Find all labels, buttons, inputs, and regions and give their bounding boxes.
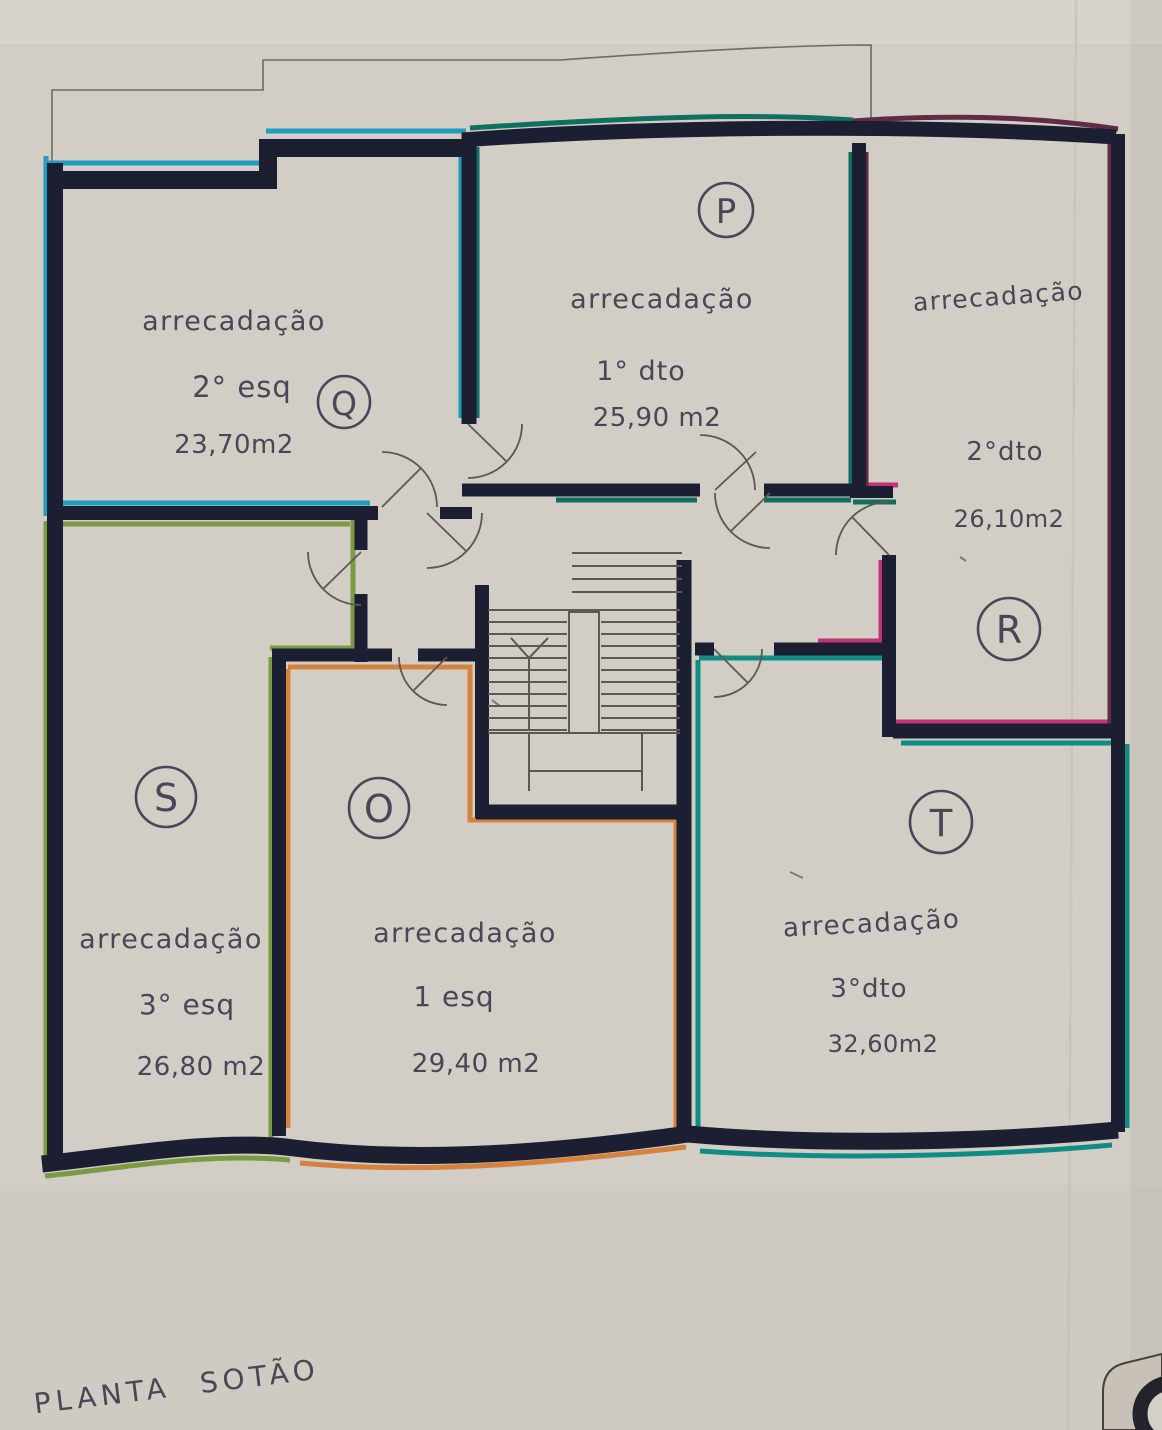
scanned-floor-plan-page: Q P R S O T arrecadação 2° esq 23,70m2 a… (0, 0, 1162, 1430)
room-q-unit: 2° esq (192, 370, 292, 404)
attic-floor-plan-drawing: Q P R S O T arrecadação 2° esq 23,70m2 a… (0, 0, 1162, 1430)
door-arc-hall-lower-left (427, 513, 482, 568)
room-p-area: 25,90 m2 (593, 403, 722, 433)
room-p-name: arrecadação (570, 284, 754, 315)
room-o-letter: O (364, 787, 394, 831)
room-r-name: arrecadação (912, 276, 1085, 317)
door-arc-room-q (382, 452, 437, 507)
door-arc-vestibule (715, 493, 770, 548)
room-p-letter: P (716, 192, 737, 232)
room-r-labels: arrecadação 2°dto 26,10m2 (912, 276, 1085, 533)
stair-upper-treads (572, 553, 682, 592)
room-p-labels: arrecadação 1° dto 25,90 m2 (570, 284, 754, 433)
door-arc-hall-upper-left (468, 424, 522, 478)
paper-top-light-band (0, 0, 1162, 44)
stair-direction-arrow (511, 638, 548, 658)
stair-landing-lines (488, 733, 680, 791)
room-o-unit: 1 esq (413, 980, 494, 1013)
door-arc-room-r (836, 502, 889, 555)
stair-left-treads (488, 622, 567, 730)
room-s-area: 26,80 m2 (137, 1052, 266, 1082)
door-arc-room-o (399, 657, 447, 705)
room-q-area: 23,70m2 (174, 430, 294, 460)
room-t-name: arrecadação (782, 904, 961, 943)
room-o-labels: arrecadação 1 esq 29,40 m2 (373, 918, 557, 1079)
room-t-unit: 3°dto (830, 974, 907, 1004)
room-o-name: arrecadação (373, 918, 557, 949)
room-s-labels: arrecadação 3° esq 26,80 m2 (79, 924, 265, 1082)
room-r-letter: R (996, 608, 1022, 652)
room-t-letter: T (929, 802, 953, 845)
room-q-name: arrecadação (142, 306, 326, 337)
room-t-labels: arrecadação 3°dto 32,60m2 (782, 904, 961, 1058)
staircase (488, 553, 682, 791)
wall-north (462, 128, 1116, 140)
room-r-area: 26,10m2 (954, 505, 1065, 533)
room-q-labels: arrecadação 2° esq 23,70m2 (142, 306, 326, 460)
room-s-letter: S (154, 776, 178, 820)
room-o-area: 29,40 m2 (412, 1049, 541, 1079)
room-t-area: 32,60m2 (828, 1030, 939, 1058)
room-s-name: arrecadação (79, 924, 263, 955)
stair-right-treads (601, 622, 680, 730)
room-p-unit: 1° dto (596, 356, 686, 387)
door-arc-room-p (700, 435, 756, 490)
room-r-unit: 2°dto (966, 437, 1043, 467)
stair-newel-wall (569, 612, 599, 733)
room-q-letter: Q (331, 384, 357, 423)
room-s-unit: 3° esq (139, 988, 235, 1021)
paper-right-edge-shade (1130, 0, 1162, 1430)
